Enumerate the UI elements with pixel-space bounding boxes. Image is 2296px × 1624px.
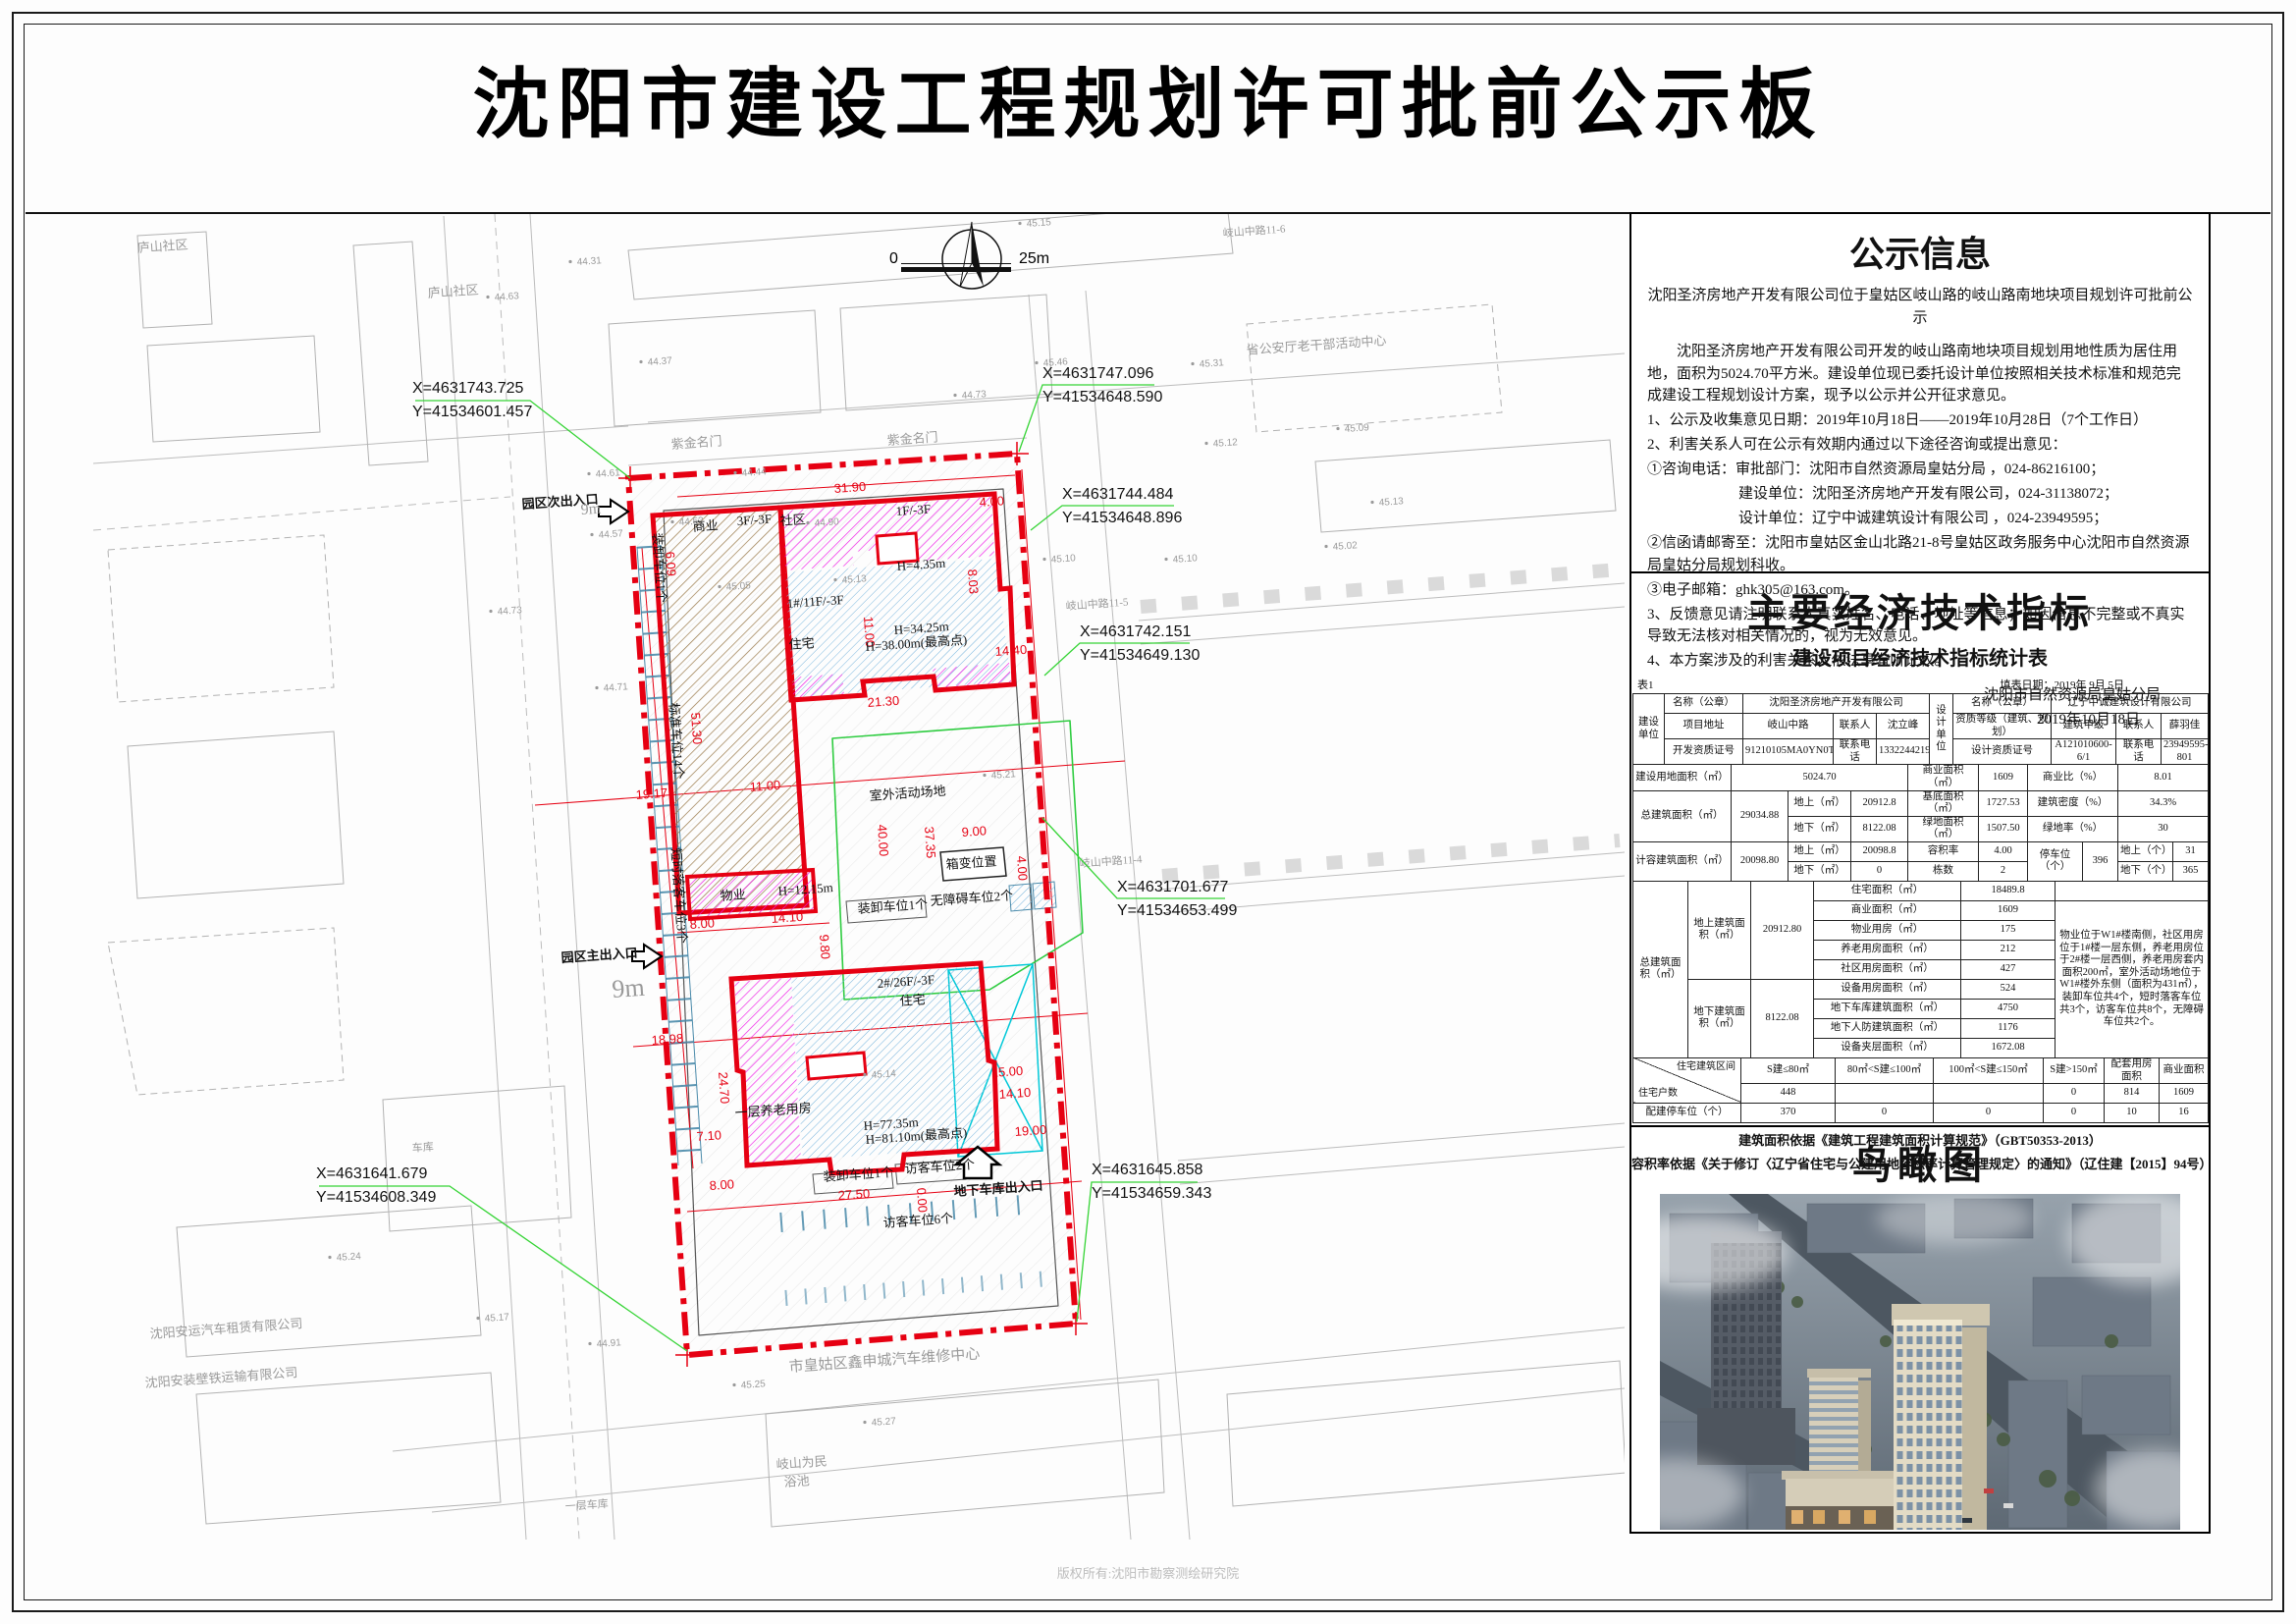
context-label: 浴池: [783, 1473, 810, 1489]
dimension-label: 27.50: [837, 1186, 871, 1203]
indicator-cell: 地下人防建筑面积（㎡）: [1814, 1018, 1961, 1038]
indicator-cell: 0: [1851, 861, 1908, 881]
indicator-cell: 1176: [1961, 1018, 2056, 1038]
notice-line: 1、公示及收集意见日期：2019年10月18日——2019年10月28日（7个工…: [1647, 409, 2193, 432]
indicator-cell: 8122.08: [1751, 979, 1814, 1057]
spot-elevation-dot: [718, 585, 721, 588]
indicator-cell: 栋数: [1908, 861, 1979, 881]
spot-elevation: 45.13: [841, 573, 867, 586]
indicator-cell: 总建筑面积（㎡）: [1633, 790, 1732, 841]
indicator-cell: 4.00: [1979, 841, 2028, 861]
site-plan-svg: 规划设计方案总平面图 N 0 25m 31.906.094.008.0314.4…: [93, 214, 1625, 1542]
indicator-cell: 91210105MA0YN0TP2Y: [1743, 739, 1834, 765]
spot-elevation-dot: [863, 1421, 866, 1424]
coordinate-label-y: Y=41534608.349: [316, 1189, 436, 1206]
spot-elevation: 45.02: [1332, 540, 1358, 553]
context-label: 紫金名门: [670, 433, 722, 452]
dimension-label: 18.98: [651, 1031, 684, 1048]
indicator-cell: 名称（公章）: [1665, 694, 1743, 714]
indicator-cell: 住宅面积（㎡）: [1814, 881, 1961, 900]
indicator-cell: 商业面积: [2160, 1057, 2209, 1083]
indicator-cell: 绿地率（%）: [2028, 816, 2118, 841]
dimension-label: 21.30: [867, 693, 900, 710]
spot-elevation: 44.44: [741, 466, 767, 479]
indicator-cell: 地下（㎡）: [1789, 816, 1851, 841]
dimension-label: 51.30: [688, 712, 705, 745]
spot-elevation-dot: [1324, 545, 1327, 548]
notice-line: 沈阳圣济房地产开发有限公司位于皇姑区岐山路的岐山路南地块项目规划许可批前公示: [1647, 285, 2193, 329]
indicator-cell: 34.3%: [2118, 790, 2209, 816]
indicator-cell: 0: [1836, 1104, 1934, 1123]
indicator-cell: 养老用房面积（㎡）: [1814, 940, 1961, 959]
aerial-section: 鸟瞰图: [1629, 1125, 2211, 1534]
indicator-cell: 商业面积（㎡）: [1814, 900, 1961, 920]
dimension-label: 19.17: [635, 785, 668, 802]
spot-elevation-dot: [863, 1073, 866, 1076]
dimension-label: 9.80: [817, 934, 833, 959]
indicator-cell: [1836, 1084, 1934, 1104]
coordinate-label-y: Y=41534659.343: [1092, 1185, 1211, 1202]
coordinate-label-y: Y=41534649.130: [1080, 647, 1200, 664]
dimension-label: 8.00: [709, 1176, 734, 1193]
plan-mark-label: 园区主出入口: [561, 946, 638, 965]
notice-line: 建设单位：沈阳圣济房地产开发有限公司，024-31138072；: [1647, 483, 2193, 506]
coordinate-label-y: Y=41534648.896: [1062, 510, 1182, 526]
dimension-label: 4.00: [1014, 855, 1031, 881]
indicator-cell: 项目地址: [1665, 714, 1743, 739]
indicator-cell: 13322442193: [1877, 739, 1930, 765]
spot-elevation-dot: [489, 610, 492, 613]
indicator-cell: 1609: [1961, 900, 2056, 920]
spot-elevation-dot: [806, 521, 809, 524]
indicator-cell: S建≤80㎡: [1741, 1057, 1836, 1083]
indicator-cell: 建设单位: [1633, 694, 1665, 765]
indicator-cell: S建>150㎡: [2044, 1057, 2105, 1083]
dimension-label: 37.35: [922, 826, 938, 859]
context-label: 岐山为民: [775, 1453, 828, 1472]
indicator-cell: 地下车库建筑面积（㎡）: [1814, 999, 1961, 1018]
context-label: 沈阳安装壁铁运输有限公司: [144, 1365, 298, 1390]
indicator-cell: 20912.80: [1751, 881, 1814, 979]
indicator-cell: 地上（㎡）: [1789, 790, 1851, 816]
indicator-cell: 100㎡<S建≤150㎡: [1934, 1057, 2044, 1083]
indicator-cell: 212: [1961, 940, 2056, 959]
spot-elevation-dot: [1204, 442, 1207, 445]
indicator-cell: 基底面积（㎡）: [1908, 790, 1979, 816]
indicator-cell: 365: [2173, 861, 2209, 881]
dimension-label: 0.00: [914, 1187, 931, 1213]
indicator-cell: 0: [2044, 1104, 2105, 1123]
spot-elevation: 44.57: [598, 528, 623, 541]
spot-elevation: 45.17: [484, 1312, 509, 1325]
indicator-table: 建设用地面积（㎡）5024.70商业面积（㎡）1609商业比（%）8.01总建筑…: [1632, 764, 2209, 882]
indicator-cell: 沈立峰: [1877, 714, 1930, 739]
svg-text:25m: 25m: [1019, 250, 1049, 267]
spot-elevation: 45.14: [871, 1068, 896, 1081]
diag-label-bottom: 住宅户数: [1638, 1088, 1678, 1100]
context-label: 庐山社区: [136, 237, 188, 255]
indicator-cell: A121010600-6/1: [2052, 739, 2116, 765]
indicator-cell: 0: [1934, 1104, 2044, 1123]
indicator-cell: 设计单位: [1930, 694, 1953, 765]
indicator-cell: 80㎡<S建≤100㎡: [1836, 1057, 1934, 1083]
spot-elevation: 45.24: [336, 1251, 361, 1264]
dimension-label: 15.00: [990, 1063, 1024, 1080]
coordinate-label-x: X=4631701.677: [1117, 879, 1229, 895]
context-label: 9m: [611, 973, 645, 1003]
indicator-cell: 地上（个）: [2118, 841, 2173, 861]
coordinate-label-y: Y=41534653.499: [1117, 902, 1237, 919]
indicator-cell: 30: [2118, 816, 2209, 841]
dimension-label: 14.10: [771, 909, 804, 926]
indicator-cell: 地上建筑面积（㎡）: [1688, 881, 1751, 979]
dimension-label: 19.00: [1014, 1122, 1047, 1139]
coordinate-label-x: X=4631742.151: [1080, 623, 1192, 640]
spot-elevation: 44.91: [596, 1337, 621, 1350]
podium: [1782, 1471, 1905, 1530]
spot-elevation: 44.73: [497, 605, 522, 618]
context-label: 9m: [580, 501, 602, 518]
coordinate-label-x: X=4631743.725: [412, 380, 524, 397]
indicator-cell: 计容建筑面积（㎡）: [1633, 841, 1732, 881]
indicator-cell: 16: [2160, 1104, 2209, 1123]
notice-board: 沈阳市建设工程规划许可批前公示板: [0, 0, 2296, 1624]
spot-elevation: 44.63: [494, 291, 519, 303]
indicator-cell: 建筑密度（%）: [2028, 790, 2118, 816]
spot-elevation: 45.10: [1050, 553, 1076, 566]
dimension-label: 40.00: [875, 824, 891, 857]
coordinate-leader: [319, 1186, 687, 1351]
spot-elevation-dot: [1336, 427, 1339, 430]
indicator-table: 住宅建筑区间住宅户数S建≤80㎡80㎡<S建≤100㎡100㎡<S建≤150㎡S…: [1632, 1057, 2209, 1123]
spot-elevation: 44.53: [678, 515, 704, 528]
spot-elevation-dot: [1164, 558, 1167, 561]
indicator-cell: 31: [2173, 841, 2209, 861]
indicator-cell: 29034.88: [1732, 790, 1789, 841]
indicator-cell: 1672.08: [1961, 1038, 2056, 1057]
context-label: 岐山中路11-5: [1065, 596, 1129, 613]
table-tag-row: 表1 填表日期：2019年 9月 5日: [1631, 677, 2209, 694]
plan-mark-label: 住宅: [899, 992, 926, 1008]
indicator-cell: 设备夹层面积（㎡）: [1814, 1038, 1961, 1057]
indicator-cell: 地上（㎡）: [1789, 841, 1851, 861]
indicator-cell: 1507.50: [1979, 816, 2028, 841]
spot-elevation: 45.21: [990, 769, 1016, 782]
context-label: 庐山社区: [427, 282, 479, 300]
indicator-cell: [2056, 881, 2209, 900]
indicator-cell: 联系电话: [1834, 739, 1877, 765]
context-label: 一层车库: [564, 1496, 609, 1513]
spot-elevation: 45.25: [740, 1379, 766, 1391]
indicator-cell: 沈阳圣济房地产开发有限公司: [1743, 694, 1930, 714]
coordinate-label-y: Y=41534601.457: [412, 404, 532, 420]
plan-mark-label: 社区: [779, 512, 806, 528]
context-label: 车库: [411, 1139, 434, 1155]
plan-mark-label: 住宅: [788, 635, 815, 652]
indicator-cell: 配建停车位（个）: [1633, 1104, 1741, 1123]
spot-elevation: 45.09: [1344, 422, 1369, 435]
spot-elevation-dot: [732, 1383, 735, 1386]
table-tag: 表1: [1637, 677, 1654, 692]
notice-title: 公示信息: [1631, 226, 2209, 277]
coordinate-label-x: X=4631747.096: [1042, 365, 1154, 382]
indicator-cell: 448: [1741, 1084, 1836, 1104]
spot-elevation-dot: [639, 360, 642, 363]
dimension-label: 8.00: [689, 915, 715, 932]
indicator-cell: 20912.8: [1851, 790, 1908, 816]
spot-elevation-dot: [1018, 222, 1021, 225]
indicator-cell: 8122.08: [1851, 816, 1908, 841]
dimension-label: 7.10: [696, 1127, 721, 1144]
spot-elevation: 44.61: [595, 467, 620, 480]
spot-elevation: 44.31: [576, 255, 602, 268]
spot-elevation-dot: [328, 1256, 331, 1259]
indicator-table: 总建筑面积（㎡）地上建筑面积（㎡）20912.80住宅面积（㎡）18489.8商…: [1632, 881, 2209, 1058]
spot-elevation-dot: [733, 471, 736, 474]
notice-line: 2、利害关系人可在公示有效期内通过以下途径咨询或提出意见：: [1647, 434, 2193, 457]
indicator-cell: 停车位（个）: [2028, 841, 2083, 881]
dimension-label: 11.00: [749, 778, 781, 794]
indicator-cell: 23949595-801: [2162, 739, 2209, 765]
spot-elevation: 45.12: [1212, 437, 1238, 450]
spot-elevation-dot: [670, 520, 673, 523]
indicator-tables: 建设单位名称（公章）沈阳圣济房地产开发有限公司设计单位名称（公章）辽宁中诚建筑设…: [1632, 693, 2208, 1123]
indicator-cell: 物业位于W1#楼南侧，社区用房位于1#楼一层东侧，养老用房位于2#楼一层西侧，养…: [2056, 900, 2209, 1057]
indicator-cell: 427: [1961, 959, 2056, 979]
spot-elevation-dot: [568, 260, 571, 263]
spot-elevation: 45.10: [1172, 553, 1198, 566]
indicator-cell: 地下建筑面积（㎡）: [1688, 979, 1751, 1057]
dimension-label: 31.90: [833, 479, 867, 496]
indicator-cell: 岐山中路: [1743, 714, 1834, 739]
indicator-table: 建设单位名称（公章）沈阳圣济房地产开发有限公司设计单位名称（公章）辽宁中诚建筑设…: [1632, 693, 2209, 765]
spot-elevation-dot: [476, 1317, 479, 1320]
right-panel: 公示信息 沈阳圣济房地产开发有限公司位于皇姑区岐山路的岐山路南地块项目规划许可批…: [1629, 214, 2211, 1534]
dimension-label: 4.00: [979, 493, 1004, 510]
spot-elevation-dot: [588, 1342, 591, 1345]
coordinate-label-x: X=4631744.484: [1062, 486, 1174, 503]
coordinate-label-x: X=4631641.679: [316, 1165, 428, 1182]
dimension-label: 9.00: [961, 823, 987, 839]
coordinate-label-y: Y=41534648.590: [1042, 389, 1162, 406]
indicator-cell: 396: [2083, 841, 2118, 881]
indicator-cell: 薛羽佳: [2162, 714, 2209, 739]
spot-elevation: 44.90: [814, 516, 839, 529]
indicator-cell: 524: [1961, 979, 2056, 999]
coordinate-label-x: X=4631645.858: [1092, 1162, 1203, 1178]
dimension-label: 8.03: [965, 568, 982, 594]
spot-elevation-dot: [983, 774, 986, 777]
spot-elevation-dot: [1370, 501, 1373, 504]
context-label: 市皇姑区鑫申城汽车维修中心: [788, 1344, 981, 1376]
spot-elevation-dot: [1191, 362, 1194, 365]
coordinate-leader: [1077, 1182, 1198, 1322]
spot-elevation-dot: [953, 394, 956, 397]
indicator-cell: 20098.8: [1851, 841, 1908, 861]
svg-text:N: N: [958, 214, 983, 220]
spot-elevation: 45.15: [1026, 217, 1051, 230]
spot-elevation: 45.31: [1199, 357, 1224, 370]
spot-elevation-dot: [1042, 558, 1045, 561]
indicator-cell: 物业用房（㎡）: [1814, 920, 1961, 940]
indicator-cell: 10: [2105, 1104, 2160, 1123]
spot-elevation: 45.13: [1378, 496, 1404, 509]
spot-elevation: 45.27: [871, 1416, 896, 1429]
spot-elevation-dot: [587, 472, 590, 475]
indicator-cell: 社区用房面积（㎡）: [1814, 959, 1961, 979]
notice-section: 公示信息 沈阳圣济房地产开发有限公司位于皇姑区岐山路的岐山路南地块项目规划许可批…: [1629, 212, 2211, 573]
indicator-cell: 容积率: [1908, 841, 1979, 861]
context-label: 沈阳安运汽车租赁有限公司: [149, 1316, 303, 1341]
indicator-cell: 1609: [2160, 1084, 2209, 1104]
plan-mark-label: 物业: [720, 887, 746, 903]
indicator-cell: 5024.70: [1732, 765, 1908, 790]
spot-elevation: 44.71: [603, 681, 628, 694]
svg-text:0: 0: [889, 250, 898, 267]
indicator-cell: 联系电话: [2116, 739, 2162, 765]
indicator-cell: 18489.8: [1961, 881, 2056, 900]
indicator-cell: 住宅建筑区间住宅户数: [1633, 1057, 1741, 1103]
plan-mark-label: 1F/-3F: [895, 502, 931, 518]
copyright-text: 版权所有:沈阳市勘察测绘研究院: [0, 1563, 2296, 1582]
spot-elevation-dot: [486, 296, 489, 298]
indicator-cell: 商业面积（㎡）: [1908, 765, 1979, 790]
indicator-cell: 1727.53: [1979, 790, 2028, 816]
indicator-cell: 地下（㎡）: [1789, 861, 1851, 881]
dimension-label: 14.10: [998, 1085, 1032, 1102]
main-tower: [1892, 1304, 1990, 1530]
indicator-cell: 20098.80: [1732, 841, 1789, 881]
indicator-cell: 8.01: [2118, 765, 2209, 790]
indicator-cell: 370: [1741, 1104, 1836, 1123]
dimension-label: 14.40: [994, 642, 1028, 659]
diag-label-top: 住宅建筑区间: [1677, 1061, 1735, 1073]
indicator-cell: 地下（个）: [2118, 861, 2173, 881]
indicator-cell: 设计资质证号: [1953, 739, 2052, 765]
spot-elevation: 45.05: [725, 580, 751, 593]
context-label: 省公安厅老干部活动中心: [1246, 333, 1387, 357]
indicator-cell: 2: [1979, 861, 2028, 881]
notice-line: 沈阳圣济房地产开发有限公司开发的岐山路南地块项目规划用地性质为居住用地，面积为5…: [1647, 341, 2193, 407]
indicator-cell: 总建筑面积（㎡）: [1633, 881, 1688, 1057]
indicator-cell: 配套用房面积: [2105, 1057, 2160, 1083]
indicator-cell: 联系人: [1834, 714, 1877, 739]
indicator-cell: 设备用房面积（㎡）: [1814, 979, 1961, 999]
notice-line: ②信函请邮寄至：沈阳市皇姑区金山北路21-8号皇姑区政务服务中心沈阳市自然资源局…: [1647, 532, 2193, 576]
building-2-residential: [731, 963, 997, 1173]
indicator-cell: 建设用地面积（㎡）: [1633, 765, 1732, 790]
indicator-cell: 开发资质证号: [1665, 739, 1743, 765]
indicator-cell: [1934, 1084, 2044, 1104]
indicator-cell: 1609: [1979, 765, 2028, 790]
indicator-cell: 绿地面积（㎡）: [1908, 816, 1979, 841]
spot-elevation: 44.37: [647, 355, 672, 368]
page-title: 沈阳市建设工程规划许可批前公示板: [0, 43, 2296, 153]
aerial-view-image: [1660, 1194, 2180, 1530]
indicator-cell: 814: [2105, 1084, 2160, 1104]
dimension-label: 24.70: [716, 1071, 732, 1105]
indicator-cell: 4750: [1961, 999, 2056, 1018]
fill-date: 填表日期：2019年 9月 5日: [2001, 677, 2125, 692]
secondary-entrance-arrow: [599, 500, 628, 523]
indicator-cell: 商业比（%）: [2028, 765, 2118, 790]
spot-elevation-dot: [595, 686, 598, 689]
notice-line: ①咨询电话：审批部门：沈阳市自然资源局皇姑分局 ，024-86216100；: [1647, 459, 2193, 481]
spot-elevation-dot: [1035, 361, 1038, 364]
context-label: 岐山中路11-6: [1222, 223, 1286, 240]
indicator-cell: 175: [1961, 920, 2056, 940]
spot-elevation: 44.73: [961, 389, 987, 402]
indicator-cell: 0: [2044, 1084, 2105, 1104]
notice-line: 设计单位：辽宁中诚建筑设计有限公司 ，024-23949595；: [1647, 508, 2193, 530]
spot-elevation-dot: [590, 533, 593, 536]
plan-mark-label: 3F/-3F: [736, 512, 772, 528]
spot-elevation-dot: [833, 578, 836, 581]
